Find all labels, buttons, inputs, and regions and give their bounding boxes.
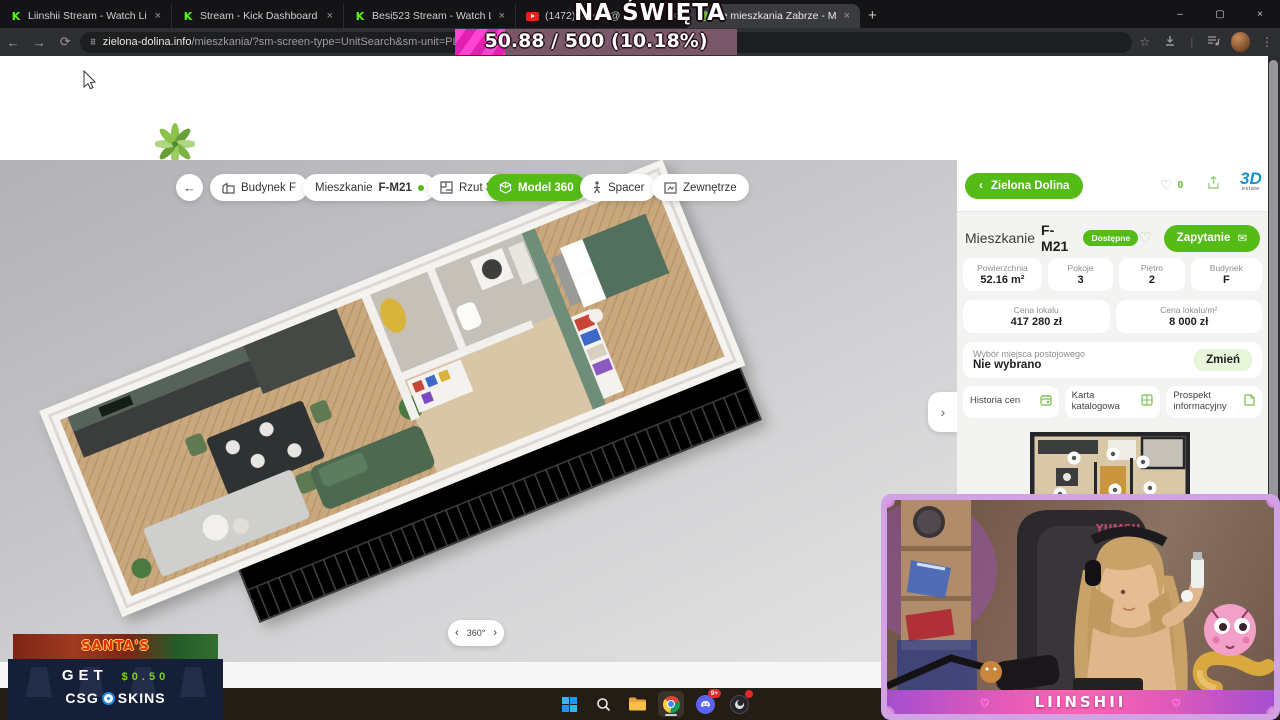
back-to-project-button[interactable]: ‹ Zielona Dolina — [965, 173, 1083, 199]
building-icon — [222, 182, 235, 194]
discord-taskbar-button[interactable]: 9+ — [692, 691, 718, 717]
unit-label: Mieszkanie — [965, 230, 1035, 246]
stat-budynek: Budynek F — [1191, 258, 1262, 291]
price-per-m2: Cena lokalu/m² 8 000 zł — [1116, 300, 1263, 333]
parking-card: Wybór miejsca postojowego Nie wybrano Zm… — [963, 342, 1262, 378]
change-parking-button[interactable]: Zmień — [1194, 349, 1252, 371]
ad-amount: $0.50 — [122, 671, 170, 683]
goal-overlay-title: NA ŚWIĘTA — [560, 0, 740, 26]
skin-silhouette — [180, 667, 206, 697]
kick-icon: K — [182, 10, 194, 22]
stat-pokoje: Pokoje 3 — [1048, 258, 1113, 291]
tab-close-icon[interactable]: × — [325, 10, 335, 22]
unit-code: F-M21 — [1041, 222, 1075, 254]
downloads-icon[interactable] — [1164, 35, 1176, 50]
ad-brand: CSG SKINS — [65, 690, 165, 706]
dollhouse-3d-viewer[interactable]: ← Budynek F Mieszkanie F-M21 Rzut 3D Mod… — [0, 160, 957, 662]
tab-close-icon[interactable]: × — [842, 10, 852, 22]
minimize-button[interactable]: – — [1160, 9, 1200, 20]
project-name: Zielona Dolina — [991, 180, 1070, 192]
mouse-cursor — [83, 70, 97, 90]
documents-row: Historia cen Karta katalogowa Prospekt i… — [963, 386, 1262, 418]
search-icon — [596, 697, 611, 712]
envelope-icon: ✉ — [1237, 231, 1247, 245]
tab-label: Model 360 — [518, 182, 574, 194]
windows-icon — [562, 697, 577, 712]
csgoskins-ad[interactable]: SANTA'S GET $0.50 CSG SKINS — [8, 634, 223, 720]
prices-row: Cena lokalu 417 280 zł Cena lokalu/m² 8 … — [963, 300, 1262, 333]
tab-close-icon[interactable]: × — [497, 10, 507, 22]
price-history-button[interactable]: Historia cen — [963, 386, 1059, 418]
favorites-count: 0 — [1178, 180, 1184, 191]
favorite-heart-icon[interactable]: ♡ — [1138, 229, 1151, 247]
walk-person-icon — [592, 181, 602, 194]
building-pill[interactable]: Budynek F — [210, 174, 308, 201]
tab-liinshii-stream[interactable]: K Liinshii Stream - Watch Live on × — [0, 4, 172, 28]
unit-prefix: Mieszkanie — [315, 182, 373, 194]
menu-icon[interactable]: ⋮ — [1261, 35, 1273, 49]
catalog-card-button[interactable]: Karta katalogowa — [1065, 386, 1161, 418]
inquiry-button[interactable]: Zapytanie ✉ — [1164, 225, 1260, 252]
reload-button[interactable]: ⟳ — [52, 34, 78, 50]
exterior-icon — [664, 182, 677, 194]
skin-silhouette — [26, 667, 52, 697]
gear-icon — [102, 692, 115, 705]
share-icon[interactable] — [1207, 176, 1220, 193]
streamer-banner: ♥ LIINSHII ♥ — [887, 690, 1274, 714]
status-badge: Dostępne — [1083, 230, 1138, 246]
ad-get-label: GET — [62, 667, 108, 684]
obs-icon — [730, 695, 749, 714]
toolbar-separator: | — [1190, 35, 1193, 49]
snake-mascot — [1186, 596, 1274, 692]
folder-icon — [629, 697, 646, 711]
forward-button[interactable]: → — [26, 35, 52, 50]
maximize-button[interactable]: ▢ — [1200, 9, 1240, 20]
kick-icon: K — [10, 10, 22, 22]
chrome-icon — [663, 696, 680, 713]
tab-title: Liinshii Stream - Watch Live on — [28, 10, 147, 22]
tab-label: Zewnętrze — [683, 182, 737, 194]
viewer-back-button[interactable]: ← — [176, 174, 203, 201]
building-label: Budynek F — [241, 182, 296, 194]
panel-header: ‹ Zielona Dolina ♡ 0 3D estate — [957, 160, 1268, 212]
apartment-3d-model — [0, 160, 957, 662]
streamer-name: LIINSHII — [1035, 693, 1127, 711]
document-icon — [1244, 394, 1255, 410]
stat-powierzchnia: Powierzchnia 52.16 m² — [963, 258, 1042, 291]
heart-icon: ♡ — [1160, 177, 1173, 194]
price-total: Cena lokalu 417 280 zł — [963, 300, 1110, 333]
tab-spacer[interactable]: Spacer — [580, 174, 656, 201]
available-dot-icon — [418, 185, 424, 191]
ad-body: GET $0.50 CSG SKINS — [8, 659, 223, 720]
rotate-360-control[interactable]: ‹ 360° › — [448, 620, 504, 646]
parking-label: Wybór miejsca postojowego — [973, 349, 1085, 359]
tab-kick-dashboard[interactable]: K Stream - Kick Dashboard × — [172, 4, 344, 28]
calendar-icon — [1040, 394, 1052, 410]
tab-model-360-active[interactable]: Model 360 — [487, 174, 586, 201]
card-icon — [1141, 394, 1153, 410]
obs-badge — [745, 690, 753, 698]
rotate-left-icon[interactable]: ‹ — [455, 627, 459, 639]
bookmark-star-icon[interactable]: ☆ — [1139, 35, 1150, 49]
chevron-left-icon: ‹ — [979, 180, 983, 192]
tab-besi523-stream[interactable]: K Besi523 Stream - Watch Live on × — [344, 4, 516, 28]
goal-progress-bar: 50.88 / 500 (10.18%) — [455, 29, 737, 55]
webcam-overlay: YUMSU — [881, 494, 1280, 720]
window-controls: – ▢ × — [1160, 0, 1280, 28]
screen: K Liinshii Stream - Watch Live on × K St… — [0, 0, 1280, 720]
unit-code: F-M21 — [379, 182, 412, 194]
tab-zewnetrze[interactable]: Zewnętrze — [652, 174, 749, 201]
site-header: — Zielona Dolina — ☎ +48 663 773 773 O i… — [0, 56, 1268, 160]
media-controls-icon[interactable] — [1207, 35, 1220, 50]
parking-value: Nie wybrano — [973, 359, 1085, 371]
panel-collapse-button[interactable]: › — [928, 392, 957, 432]
file-explorer-button[interactable] — [624, 691, 650, 717]
tab-title: Stream - Kick Dashboard — [200, 10, 319, 22]
floorplan-icon — [440, 181, 453, 194]
site-info-icon[interactable]: ⩩ — [90, 37, 95, 48]
stat-pietro: Piętro 2 — [1119, 258, 1184, 291]
3destate-logo[interactable]: 3D estate — [1240, 170, 1262, 193]
back-button[interactable]: ← — [0, 35, 26, 50]
kick-icon: K — [354, 10, 366, 22]
unit-title-row: Mieszkanie F-M21 Dostępne ♡ Zapytanie ✉ — [965, 222, 1260, 254]
rotate-label: 360° — [467, 628, 486, 638]
ad-santa-strip: SANTA'S — [13, 634, 218, 659]
favorites-counter[interactable]: ♡ 0 — [1160, 177, 1183, 194]
cube-icon — [499, 181, 512, 194]
rotate-right-icon[interactable]: › — [493, 627, 497, 639]
youtube-icon — [526, 12, 539, 21]
tab-title: Besi523 Stream - Watch Live on — [372, 10, 491, 22]
stats-row: Powierzchnia 52.16 m² Pokoje 3 Piętro 2 … — [963, 258, 1262, 291]
ad-santa-text: SANTA'S — [81, 639, 150, 654]
unit-pill[interactable]: Mieszkanie F-M21 — [303, 174, 436, 201]
discord-badge: 9+ — [708, 689, 721, 698]
chrome-taskbar-button[interactable] — [658, 691, 684, 717]
goal-progress-text: 50.88 / 500 (10.18%) — [455, 30, 737, 52]
obs-taskbar-button[interactable] — [726, 691, 752, 717]
tab-label: Spacer — [608, 182, 644, 194]
profile-avatar[interactable] — [1231, 32, 1250, 52]
heart-icon: ♥ — [1172, 695, 1180, 710]
tab-close-icon[interactable]: × — [153, 10, 163, 22]
prospectus-button[interactable]: Prospekt informacyjny — [1166, 386, 1262, 418]
heart-icon: ♥ — [981, 695, 989, 710]
new-tab-button[interactable]: + — [868, 7, 877, 24]
close-button[interactable]: × — [1240, 9, 1280, 20]
taskbar-search-button[interactable] — [590, 691, 616, 717]
start-button[interactable] — [556, 691, 582, 717]
